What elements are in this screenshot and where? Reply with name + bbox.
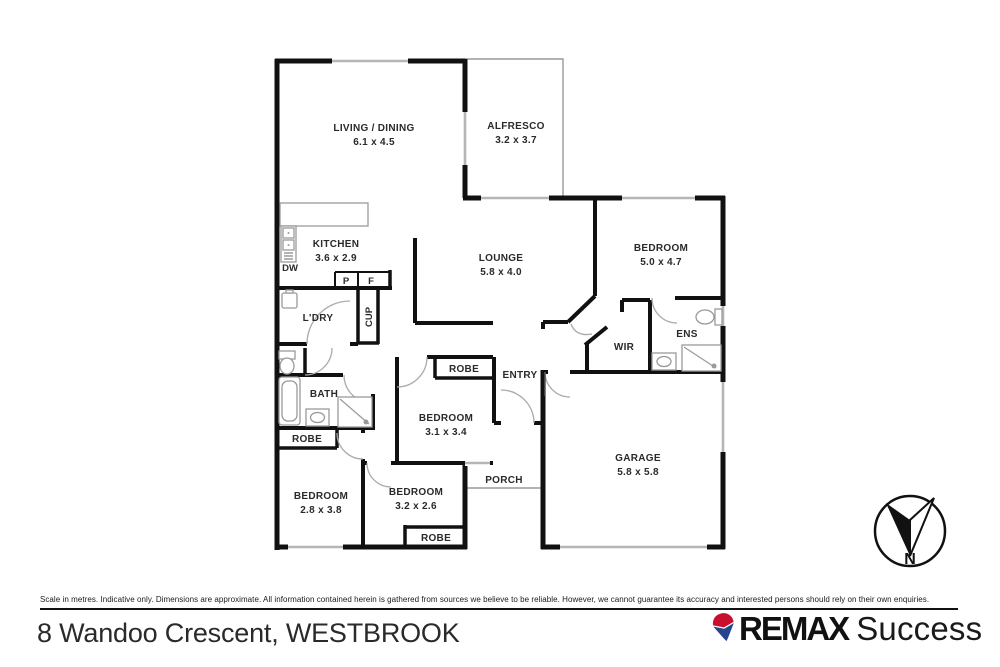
room-dims-lounge: 5.8 x 4.0 xyxy=(480,267,522,278)
room-dims-bed-master: 5.0 x 4.7 xyxy=(640,257,682,268)
kitchen-bench xyxy=(280,203,368,226)
room-label-alfresco: ALFRESCO xyxy=(487,121,544,132)
address-text: 8 Wandoo Crescent, WESTBROOK xyxy=(37,618,460,649)
room-dims-bed2: 3.1 x 3.4 xyxy=(425,427,467,438)
ens-basin-icon xyxy=(657,357,671,367)
balloon-icon xyxy=(709,610,740,644)
door-arc-bed2 xyxy=(397,357,427,387)
shower-drain-dot xyxy=(364,420,369,425)
door-arc-hall xyxy=(571,324,592,335)
brand-suffix: Success xyxy=(856,611,982,647)
room-label-bath: BATH xyxy=(310,389,338,400)
door-arc-garage xyxy=(545,372,570,397)
floorplan-svg: LIVING / DINING 6.1 x 4.5 ALFRESCO 3.2 x… xyxy=(0,0,1000,600)
toilet-bowl-icon xyxy=(280,358,294,374)
room-label-garage: GARAGE xyxy=(615,453,661,464)
room-label-laundry: L'DRY xyxy=(303,313,334,324)
floorplan: LIVING / DINING 6.1 x 4.5 ALFRESCO 3.2 x… xyxy=(0,0,1000,605)
room-label-cupboard: CUP xyxy=(364,306,375,327)
tap-dot xyxy=(288,244,290,246)
room-dims-kitchen: 3.6 x 2.9 xyxy=(315,253,357,264)
room-dims-bed4: 3.2 x 2.6 xyxy=(395,501,437,512)
north-label: N xyxy=(904,551,916,568)
brand-logo: REMAX Success xyxy=(711,611,982,647)
room-labels: LIVING / DINING 6.1 x 4.5 ALFRESCO 3.2 x… xyxy=(282,121,698,544)
door-arc-front-door xyxy=(501,390,534,423)
room-label-robe: ROBE xyxy=(449,364,479,375)
room-label-kitchen: KITCHEN xyxy=(313,239,360,250)
room-label-robe: ROBE xyxy=(292,434,322,445)
fixtures xyxy=(279,203,722,427)
room-label-lounge: LOUNGE xyxy=(479,253,524,264)
ens-toilet-cistern-icon xyxy=(715,309,722,325)
room-dims-bed3: 2.8 x 3.8 xyxy=(300,505,342,516)
door-arc-wc xyxy=(305,348,332,375)
brand-name: REMAX xyxy=(739,611,848,647)
room-dims-living: 6.1 x 4.5 xyxy=(353,137,395,148)
room-label-ens: ENS xyxy=(676,329,697,340)
room-label-wir: WIR xyxy=(614,342,635,353)
room-label-robe: ROBE xyxy=(421,533,451,544)
room-label-bed3: BEDROOM xyxy=(294,491,348,502)
room-dims-alfresco: 3.2 x 3.7 xyxy=(495,135,537,146)
door-arc-bed4 xyxy=(367,463,391,487)
laundry-tap-icon xyxy=(286,290,293,293)
dishwasher-label: DW xyxy=(282,263,298,274)
door-arc-bed3 xyxy=(337,433,363,459)
room-dims-garage: 5.8 x 5.8 xyxy=(617,467,659,478)
room-label-bed4: BEDROOM xyxy=(389,487,443,498)
fridge-label: F xyxy=(368,276,374,287)
ens-toilet-bowl-icon xyxy=(696,310,714,324)
laundry-trough-icon xyxy=(282,293,297,308)
bathtub-inner xyxy=(282,381,297,421)
room-label-living: LIVING / DINING xyxy=(333,123,414,134)
pantry-label: P xyxy=(343,276,350,287)
north-compass: N xyxy=(875,496,945,568)
door-arc-ens xyxy=(652,298,677,323)
room-label-bed2: BEDROOM xyxy=(419,413,473,424)
tap-dot xyxy=(288,232,290,234)
room-label-porch: PORCH xyxy=(485,475,523,486)
room-label-bed-master: BEDROOM xyxy=(634,243,688,254)
room-label-entry: ENTRY xyxy=(502,370,537,381)
disclaimer-text: Scale in metres. Indicative only. Dimens… xyxy=(40,595,958,604)
shower-drain-dot xyxy=(712,364,717,369)
bath-basin-icon xyxy=(311,413,325,423)
